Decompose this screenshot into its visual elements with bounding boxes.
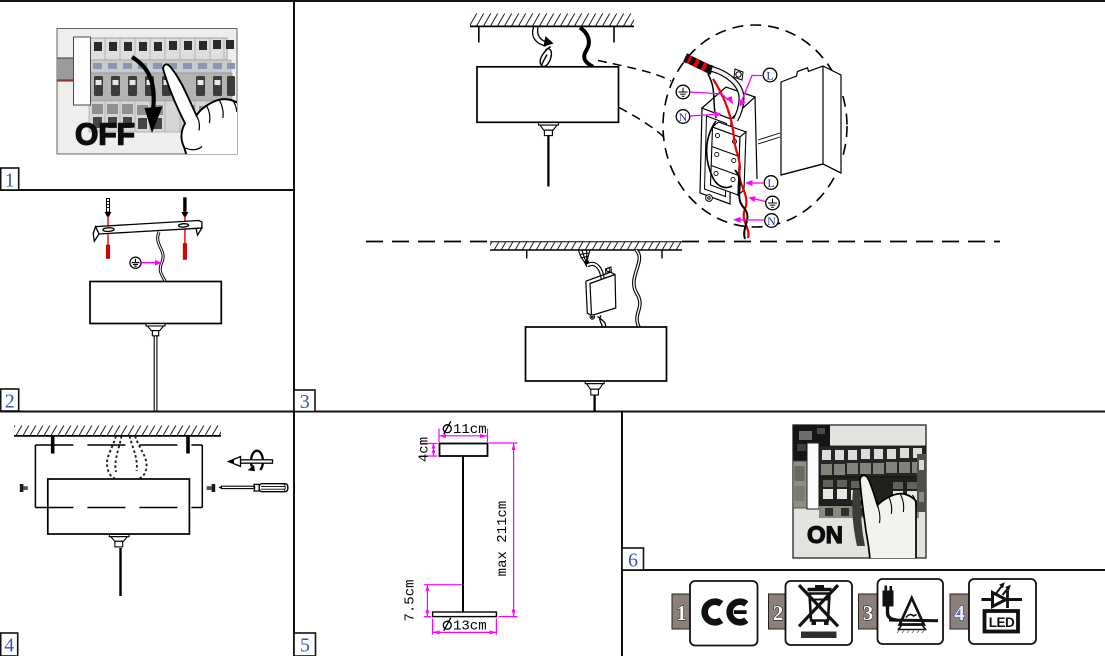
- svg-text:ON: ON: [807, 522, 843, 549]
- svg-text:4: 4: [4, 635, 14, 656]
- svg-text:4: 4: [954, 601, 965, 625]
- svg-text:L: L: [767, 176, 774, 190]
- svg-text:7.5cm: 7.5cm: [403, 579, 419, 621]
- svg-text:5: 5: [300, 635, 310, 656]
- svg-text:N: N: [679, 110, 688, 124]
- svg-text:OFF: OFF: [75, 117, 135, 152]
- svg-text:1: 1: [676, 601, 687, 625]
- svg-text:max 211cm: max 211cm: [495, 501, 511, 577]
- svg-text:N: N: [767, 214, 776, 228]
- svg-text:6: 6: [628, 550, 638, 572]
- svg-text:4cm: 4cm: [417, 437, 433, 462]
- svg-text:1: 1: [5, 170, 15, 192]
- svg-text:13cm: 13cm: [453, 619, 487, 635]
- svg-text:3: 3: [300, 391, 310, 413]
- svg-text:3: 3: [863, 601, 874, 625]
- svg-text:11cm: 11cm: [453, 422, 487, 438]
- svg-text:2: 2: [773, 601, 784, 625]
- svg-text:L: L: [766, 69, 773, 83]
- svg-text:LED: LED: [989, 615, 1015, 630]
- svg-text:2: 2: [5, 391, 15, 413]
